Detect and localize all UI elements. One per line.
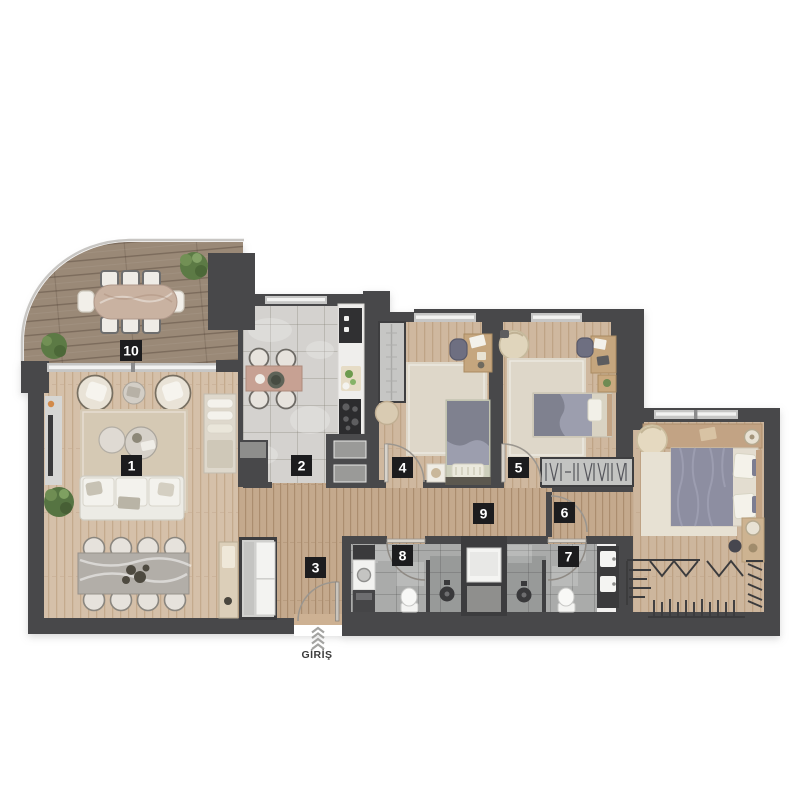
svg-text:1: 1 — [128, 458, 136, 474]
svg-text:10: 10 — [123, 343, 139, 359]
svg-text:9: 9 — [480, 506, 488, 522]
svg-text:4: 4 — [399, 460, 407, 476]
svg-text:2: 2 — [298, 458, 306, 474]
svg-text:5: 5 — [515, 460, 523, 476]
svg-text:GİRİŞ: GİRİŞ — [301, 648, 332, 661]
svg-text:3: 3 — [312, 560, 320, 576]
svg-text:8: 8 — [399, 548, 407, 564]
svg-text:7: 7 — [565, 549, 573, 565]
svg-text:6: 6 — [561, 505, 569, 521]
